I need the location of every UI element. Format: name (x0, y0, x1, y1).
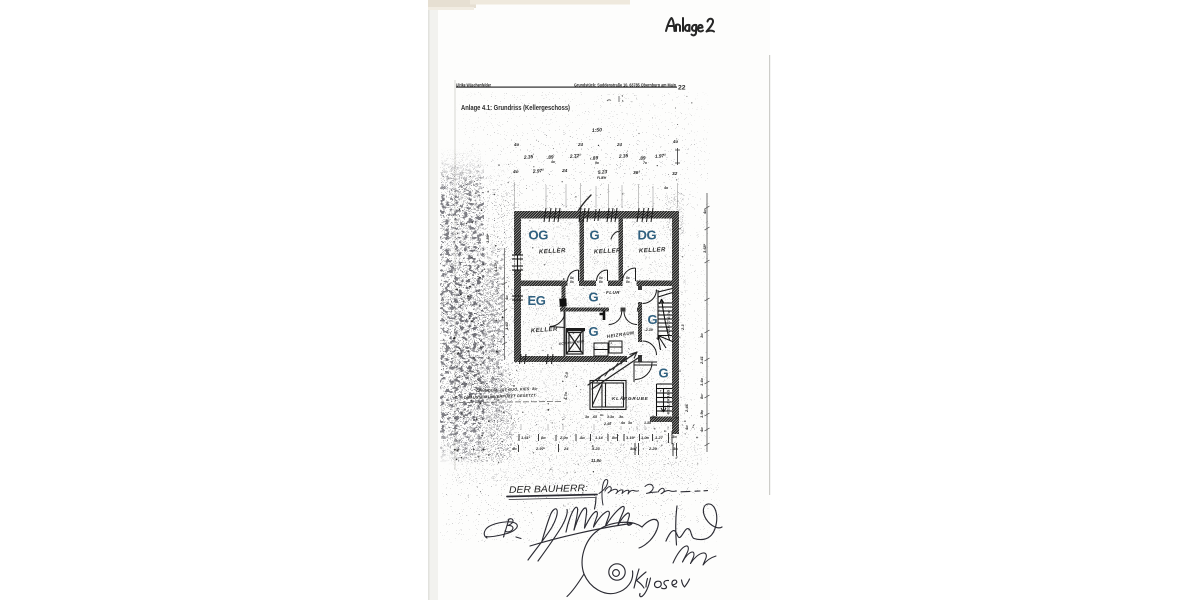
svg-text:.8o: .8o (651, 415, 656, 419)
svg-text:KELLERABG.: KELLERABG. (667, 388, 671, 414)
svg-text:FLIEH: FLIEH (597, 176, 607, 180)
svg-text:1.4o: 1.4o (699, 377, 704, 386)
svg-text:4.7o: 4.7o (563, 391, 568, 401)
svg-text:4o: 4o (513, 142, 519, 147)
svg-text:1.27: 1.27 (655, 435, 664, 440)
svg-text:9o: 9o (600, 413, 604, 417)
svg-text:4o: 4o (511, 446, 517, 451)
svg-text:4o: 4o (550, 160, 555, 164)
svg-text:36²: 36² (633, 170, 640, 176)
svg-text:2.3: 2.3 (680, 324, 685, 331)
svg-text:7o: 7o (643, 161, 647, 165)
svg-text:4.13⁵: 4.13⁵ (493, 262, 498, 273)
svg-text:24: 24 (577, 142, 583, 147)
svg-text:2.72²: 2.72² (569, 153, 582, 160)
svg-text:2.35: 2.35 (523, 154, 534, 161)
svg-text:8o: 8o (626, 280, 630, 284)
svg-text:1.3o: 1.3o (607, 415, 615, 419)
svg-text:4o: 4o (684, 425, 689, 431)
svg-text:-2.39: -2.39 (645, 328, 653, 332)
svg-text:G: G (590, 228, 600, 243)
svg-text:3o∣: 3o∣ (630, 446, 638, 451)
svg-text:4o: 4o (672, 139, 678, 144)
svg-text:3.68⁵: 3.68⁵ (702, 243, 707, 253)
svg-text:24: 24 (616, 142, 622, 147)
svg-text:4o: 4o (620, 421, 626, 425)
svg-text:DER BAUHERR:: DER BAUHERR: (509, 483, 589, 496)
svg-text:Anlage 4.1: Grundriss (Kellerg: Anlage 4.1: Grundriss (Kellergeschoss) (461, 103, 570, 112)
svg-text:5.23: 5.23 (598, 169, 608, 176)
svg-text:9o: 9o (595, 161, 599, 165)
svg-text:2.0o: 2.0o (559, 435, 569, 440)
svg-text:2.35: 2.35 (618, 153, 629, 160)
svg-text:1.14: 1.14 (595, 435, 604, 440)
svg-text:KLÄRGRUBE: KLÄRGRUBE (612, 395, 649, 401)
svg-text:11.8o: 11.8o (591, 458, 602, 463)
svg-text:EG: EG (528, 293, 546, 308)
svg-text:.3o: .3o (671, 434, 677, 439)
svg-text:3o: 3o (673, 446, 678, 451)
svg-text:1:50: 1:50 (592, 127, 603, 134)
svg-text:.8o: .8o (579, 435, 585, 440)
svg-text:5.23: 5.23 (592, 446, 601, 451)
svg-text:1.61⁵: 1.61⁵ (521, 435, 531, 440)
svg-text:8o: 8o (599, 280, 603, 284)
svg-text:1.9o: 1.9o (699, 409, 704, 418)
svg-text:2.29: 2.29 (648, 446, 658, 451)
svg-text:OG: OG (529, 228, 549, 243)
svg-text:G: G (589, 324, 599, 339)
svg-text:24: 24 (561, 168, 568, 174)
svg-text:8o: 8o (699, 394, 704, 399)
svg-text:DG: DG (638, 228, 657, 243)
svg-text:ANTRITT 0.2o: ANTRITT 0.2o (667, 311, 671, 337)
svg-text:G: G (659, 366, 669, 381)
svg-text:G: G (589, 290, 599, 305)
svg-text:Ulrike Wäschenfelder: Ulrike Wäschenfelder (456, 83, 491, 89)
svg-text:1.97²: 1.97² (655, 153, 667, 160)
svg-text:8o: 8o (570, 280, 574, 284)
svg-text:2.97³: 2.97³ (535, 446, 546, 451)
svg-text:32: 32 (672, 171, 678, 177)
svg-text:G: G (648, 312, 658, 327)
svg-text:1.35: 1.35 (644, 421, 652, 425)
svg-text:22: 22 (678, 85, 686, 92)
svg-text:1.19³: 1.19³ (626, 435, 636, 440)
svg-text:2.46: 2.46 (684, 403, 689, 413)
svg-text:Grundstück: Suddenstraße 10, 6: Grundstück: Suddenstraße 10, 63785 Obern… (574, 83, 676, 89)
svg-text:4o: 4o (663, 186, 669, 190)
svg-text:2.97²: 2.97² (532, 168, 545, 175)
svg-text:1.0o: 1.0o (641, 435, 650, 440)
svg-text:FLUR: FLUR (606, 290, 620, 295)
svg-text:8o: 8o (541, 435, 546, 440)
svg-text:4o: 4o (702, 209, 707, 215)
svg-text:2.41: 2.41 (699, 355, 704, 365)
svg-text:4o: 4o (699, 427, 704, 433)
svg-text:1.89⁵: 1.89⁵ (485, 233, 490, 243)
svg-text:3o: 3o (699, 333, 704, 338)
svg-text:24: 24 (563, 446, 569, 451)
svg-text:2.45: 2.45 (603, 422, 612, 426)
svg-text:8o: 8o (612, 435, 617, 440)
svg-text:4o: 4o (512, 169, 519, 175)
